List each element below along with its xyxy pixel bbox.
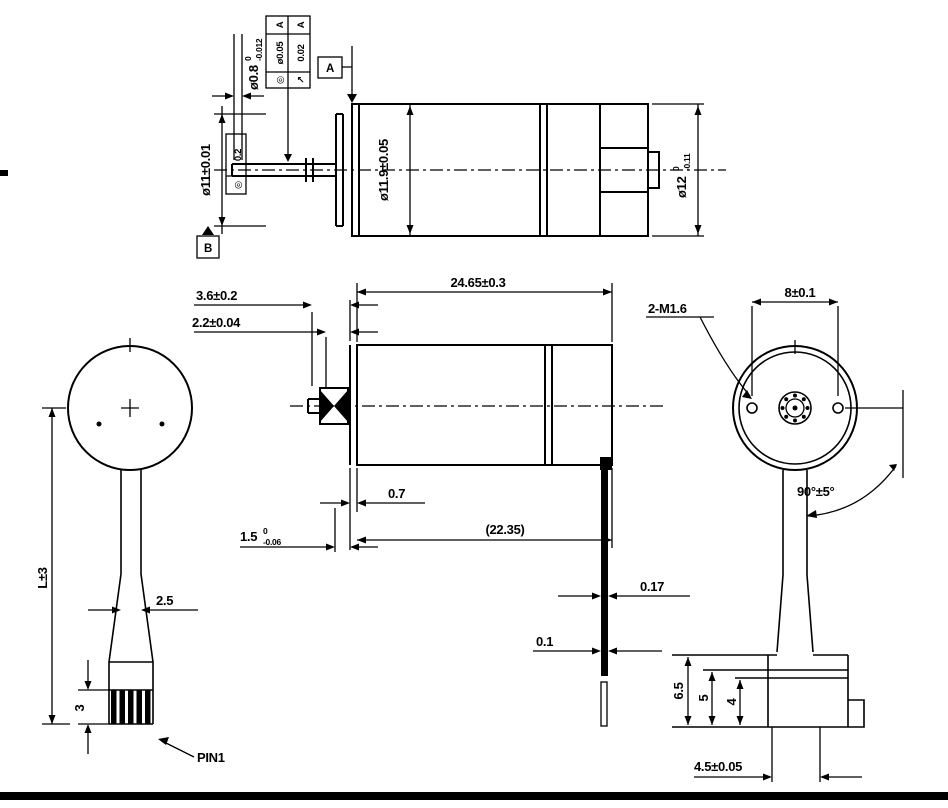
dim-pinion-hub-label: 2.2±0.04 <box>192 315 241 330</box>
dim-body-len-label: 24.65±0.3 <box>450 275 505 290</box>
dim-ref-len-label: (22.35) <box>485 522 524 537</box>
terminal-tab-tip <box>601 682 607 726</box>
dim-gearbox-dia-label: ø11.9±0.05 <box>376 139 391 201</box>
thread-leader <box>700 317 750 396</box>
rear-center-dot <box>793 406 798 411</box>
thread-note-label: 2-M1.6 <box>648 301 687 316</box>
dim-tab-thk-label: 0.17 <box>640 579 664 594</box>
dim-motor-dia-tol-upper: 0 <box>671 166 681 171</box>
screw-hole-left <box>747 403 757 413</box>
conn-4-callout: 4 <box>724 697 739 705</box>
dim-conn-5-label: 5 <box>696 694 711 701</box>
lead-wire-outline <box>109 470 153 724</box>
drawing-sheet: ø0.8 0 -0.012 ◎ ø0.05 A ↗ 0.02 A A ø11±0… <box>0 0 948 808</box>
front-hole-right <box>160 422 165 427</box>
connector-hatch <box>111 690 151 724</box>
dim-shaft-len-label: 1.5 <box>240 529 257 544</box>
gearbox-diameter-callout: ø11.9±0.05 <box>376 139 391 201</box>
dim-conn-pitch-label: 4.5±0.05 <box>694 759 742 774</box>
side-view-outline <box>308 345 612 465</box>
dim-shaft-dia-label: ø0.8 <box>246 65 261 90</box>
dim-shaft-len-tol-upper: 0 <box>263 526 268 536</box>
pin1-label: PIN1 <box>197 750 225 765</box>
dim-front-dia-label: ø11±0.01 <box>198 144 213 196</box>
gdt-row2-datum: A <box>296 21 307 28</box>
gdt-row1-symbol: ◎ <box>275 76 286 84</box>
side-view: 3.6±0.2 2.2±0.04 24.65±0.3 0.7 (22.35) 1… <box>192 275 690 726</box>
dim-plate-thk-label: 0.7 <box>388 486 405 501</box>
front-journal-callout: ø11±0.01 <box>198 144 213 196</box>
top-view: ø0.8 0 -0.012 ◎ ø0.05 A ↗ 0.02 A A ø11±0… <box>197 16 726 258</box>
rear-view-arrowheads <box>685 299 898 781</box>
shaft-diameter-callout: ø0.8 0 -0.012 <box>243 38 264 90</box>
dim-pinion-len-label: 3.6±0.2 <box>196 288 237 303</box>
dim-connector-h-label: 3 <box>72 704 87 711</box>
dim-hole-span-label: 8±0.1 <box>785 285 816 300</box>
dim-shaft-dia-tol-lower: -0.012 <box>254 38 264 61</box>
dim-wire-len-label: L±3 <box>35 567 50 588</box>
sheet-edge-mark <box>0 170 8 176</box>
gdt-row2-symbol: ↗ <box>296 76 307 84</box>
gdt-row2-value: 0.02 <box>296 44 307 61</box>
rear-view-dimension-lines <box>646 302 862 782</box>
screw-hole-right <box>833 403 843 413</box>
gdt-row1-datum: A <box>275 21 286 28</box>
gdt-row1-value: ø0.05 <box>275 41 286 65</box>
dim-shaft-dia-tol-upper: 0 <box>243 56 253 61</box>
front-view: L±3 2.5 3 PIN1 <box>35 338 225 765</box>
datum-b-flag: B <box>197 236 219 258</box>
datum-a-flag: A <box>318 57 342 78</box>
connector-height-callout: 3 <box>72 704 87 711</box>
terminal-tab <box>601 470 608 676</box>
datum-b-label: B <box>204 243 212 255</box>
pinion-hatch <box>320 390 612 470</box>
conn-5-callout: 5 <box>696 694 711 701</box>
dim-motor-dia-label: ø12 <box>674 176 689 198</box>
dim-conn-65-label: 6.5 <box>671 682 686 699</box>
motor-diameter-callout: ø12 0 -0.11 <box>671 153 692 198</box>
dim-motor-dia-tol-lower: -0.11 <box>682 153 692 171</box>
dim-angle-label: 90°±5° <box>797 484 835 499</box>
dim-tab-off-label: 0.1 <box>536 634 553 649</box>
sheet-border-bottom <box>0 792 948 800</box>
rear-connector-outline <box>672 655 864 727</box>
dim-shaft-len-tol-lower: -0.06 <box>263 537 281 547</box>
front-view-marks <box>121 338 139 417</box>
engineering-drawing: ø0.8 0 -0.012 ◎ ø0.05 A ↗ 0.02 A A ø11±0… <box>0 0 948 808</box>
gdt-runout-value: 0.2 <box>233 149 244 161</box>
dim-conn-4-label: 4 <box>724 697 739 705</box>
gdt-feature-control-frame: ◎ ø0.05 A ↗ 0.02 A <box>266 16 310 88</box>
rear-view: 8±0.1 2-M1.6 90°±5° 6.5 5 4 4.5±0.05 <box>646 285 903 782</box>
dim-wire-width-label: 2.5 <box>156 593 173 608</box>
conn-65-callout: 6.5 <box>671 682 686 699</box>
gdt-runout-symbol: ◎ <box>233 181 244 189</box>
front-hole-left <box>97 422 102 427</box>
datum-a-label: A <box>326 63 334 75</box>
wire-length-callout: L±3 <box>35 567 50 588</box>
